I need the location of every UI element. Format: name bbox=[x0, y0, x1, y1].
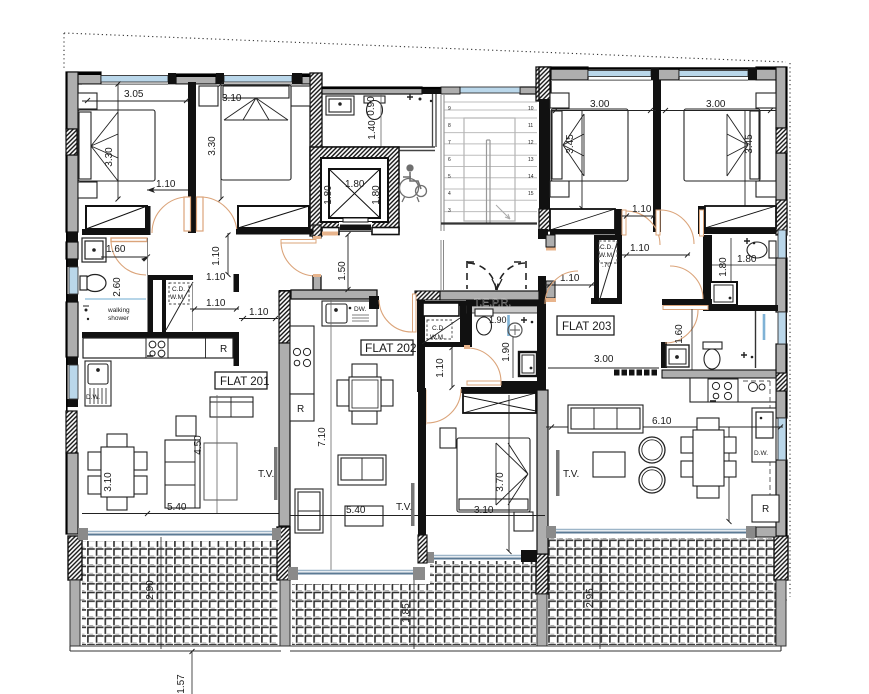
svg-text:3.70: 3.70 bbox=[495, 472, 506, 492]
svg-text:1.80: 1.80 bbox=[345, 179, 365, 190]
svg-text:12: 12 bbox=[528, 140, 534, 146]
svg-text:T.V.: T.V. bbox=[563, 469, 579, 480]
svg-text:1.60: 1.60 bbox=[106, 244, 126, 255]
svg-text:R: R bbox=[220, 344, 227, 355]
svg-text:1.57: 1.57 bbox=[176, 674, 187, 694]
svg-text:3.10: 3.10 bbox=[222, 93, 242, 104]
svg-text:T.V.: T.V. bbox=[258, 469, 274, 480]
svg-text:1.10: 1.10 bbox=[630, 243, 650, 254]
svg-text:1.85: 1.85 bbox=[401, 603, 412, 623]
svg-text:14: 14 bbox=[528, 174, 534, 180]
svg-text:1.40: 1.40 bbox=[367, 120, 378, 140]
svg-text:1.90: 1.90 bbox=[501, 342, 512, 362]
svg-text:3: 3 bbox=[448, 208, 451, 214]
svg-text:1.80: 1.80 bbox=[737, 254, 757, 265]
svg-text:1.10: 1.10 bbox=[211, 246, 222, 266]
svg-text:1.10: 1.10 bbox=[156, 179, 176, 190]
svg-text:1.10: 1.10 bbox=[249, 307, 269, 318]
svg-text:9: 9 bbox=[448, 106, 451, 112]
svg-text:FLAT 203: FLAT 203 bbox=[562, 321, 611, 333]
svg-text:1.10: 1.10 bbox=[435, 358, 446, 378]
svg-text:T.V.: T.V. bbox=[396, 502, 412, 513]
svg-text:1.80: 1.80 bbox=[718, 257, 729, 277]
svg-text:FLAT 201: FLAT 201 bbox=[220, 376, 269, 388]
svg-text:4: 4 bbox=[448, 191, 451, 197]
svg-text:5: 5 bbox=[448, 174, 451, 180]
svg-text:1.90: 1.90 bbox=[489, 315, 507, 325]
svg-text:3.00: 3.00 bbox=[706, 99, 726, 110]
svg-text:5.40: 5.40 bbox=[346, 505, 366, 516]
svg-text:1.10: 1.10 bbox=[206, 272, 226, 283]
svg-text:13: 13 bbox=[528, 157, 534, 163]
svg-text:7: 7 bbox=[448, 140, 451, 146]
svg-text:6: 6 bbox=[448, 157, 451, 163]
svg-text:D.W.: D.W. bbox=[754, 450, 768, 457]
svg-text:C.D.: C.D. bbox=[172, 286, 185, 293]
svg-text:5.40: 5.40 bbox=[167, 502, 187, 513]
svg-text:8: 8 bbox=[448, 123, 451, 129]
svg-text:3.00: 3.00 bbox=[594, 354, 614, 365]
svg-text:R: R bbox=[297, 404, 304, 415]
svg-text:T.E.P.R.: T.E.P.R. bbox=[474, 297, 511, 309]
svg-text:shower: shower bbox=[108, 315, 130, 322]
svg-text:11: 11 bbox=[528, 123, 533, 129]
svg-text:1.60: 1.60 bbox=[674, 324, 685, 344]
svg-text:2.60: 2.60 bbox=[112, 277, 123, 297]
svg-text:D.W.: D.W. bbox=[86, 394, 100, 401]
svg-text:W.M.: W.M. bbox=[599, 252, 614, 259]
svg-text:15: 15 bbox=[528, 191, 534, 197]
svg-text:walking: walking bbox=[107, 307, 130, 314]
svg-text:1.50: 1.50 bbox=[337, 261, 348, 281]
svg-text:7.10: 7.10 bbox=[317, 427, 328, 447]
svg-text:C.D.: C.D. bbox=[600, 244, 613, 251]
svg-text:3.45: 3.45 bbox=[565, 134, 576, 154]
svg-text:3.05: 3.05 bbox=[124, 89, 144, 100]
svg-text:3.45: 3.45 bbox=[744, 134, 755, 154]
svg-text:4.50: 4.50 bbox=[193, 435, 204, 455]
svg-text:0.90: 0.90 bbox=[366, 96, 377, 116]
svg-text:3.00: 3.00 bbox=[590, 99, 610, 110]
svg-text:3.10: 3.10 bbox=[474, 505, 494, 516]
svg-text:1.10: 1.10 bbox=[206, 298, 226, 309]
svg-text:R: R bbox=[762, 504, 769, 515]
svg-text:3.10: 3.10 bbox=[103, 472, 114, 492]
svg-text:3.30: 3.30 bbox=[207, 136, 218, 156]
svg-text:2.90: 2.90 bbox=[145, 580, 156, 600]
svg-text:6.10: 6.10 bbox=[652, 416, 672, 427]
svg-text:3.30: 3.30 bbox=[104, 147, 115, 167]
svg-text:DW.: DW. bbox=[354, 306, 366, 313]
svg-text:1.80: 1.80 bbox=[371, 185, 382, 205]
svg-text:1.10: 1.10 bbox=[632, 204, 652, 215]
svg-text:10: 10 bbox=[528, 106, 534, 112]
svg-text:FLAT 202: FLAT 202 bbox=[365, 341, 417, 355]
svg-text:2.95: 2.95 bbox=[585, 588, 596, 608]
svg-text:1.80: 1.80 bbox=[323, 185, 334, 205]
